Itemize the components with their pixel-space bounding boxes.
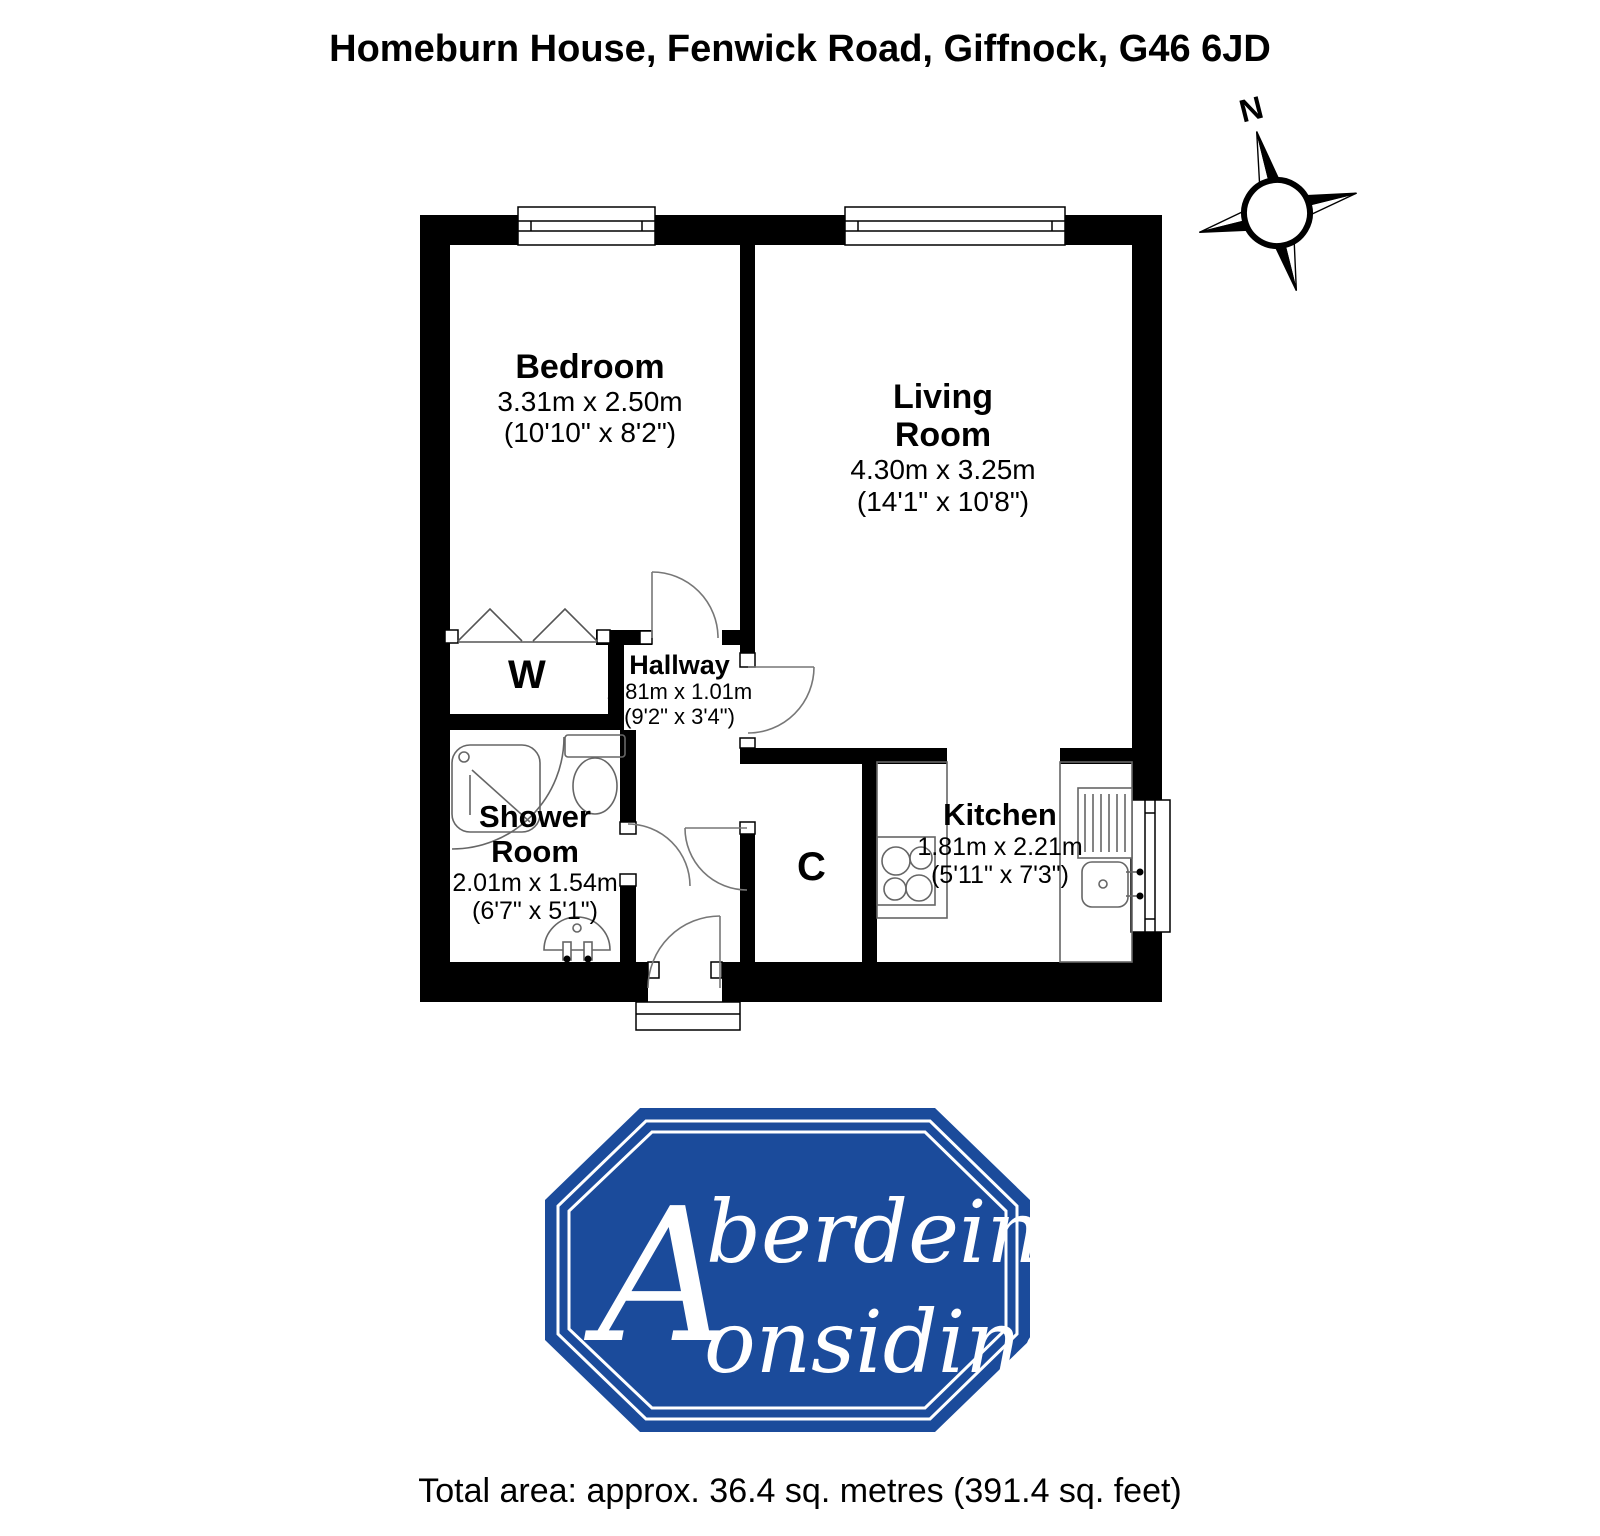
jamb [740,738,755,748]
shower-room-label: Shower Room 2.01m x 1.54m (6'7" x 5'1") [440,800,630,925]
living-room-window [845,207,1065,245]
room-dim-metric: 1.81m x 2.21m [900,833,1100,861]
logo-word-2: onsidine [704,1293,1072,1393]
shower-room-door [628,824,690,886]
cupboard-label: C [797,845,826,890]
room-dim-metric: 2.01m x 1.54m [440,869,630,897]
room-dim-imperial: (5'11" x 7'3") [900,861,1100,889]
floorplan-page: Homeburn House, Fenwick Road, Giffnock, … [0,0,1600,1536]
wardrobe-label: W [508,653,546,698]
room-dim-imperial: (9'2" x 3'4") [592,705,767,730]
bedroom-door [652,572,718,638]
room-name: Bedroom [460,348,720,386]
jamb [640,631,652,644]
hallway-label: Hallway 2.81m x 1.01m (9'2" x 3'4") [592,650,767,729]
room-name: Living Room [843,378,1043,454]
front-door-threshold [636,1002,740,1030]
room-dim-metric: 3.31m x 2.50m [460,386,720,417]
kitchen-window [1131,800,1170,932]
room-name: Shower Room [440,800,630,869]
wall-hall-cupboard [740,834,755,962]
jamb [597,630,610,643]
compass-circle [1237,173,1317,253]
wall-bedroom-living [740,245,755,653]
wardrobe-bifold-doors [458,609,597,642]
living-room-label: Living Room 4.30m x 3.25m (14'1" x 10'8"… [843,378,1043,517]
room-dim-imperial: (10'10" x 8'2") [460,417,720,448]
bedroom-window [518,207,655,245]
room-name: Kitchen [900,798,1100,833]
wall-bedroom-south-east [722,630,755,645]
floor-plan: N A berdein onsidine [0,0,1600,1536]
logo-word-1: berdein [706,1183,1042,1283]
kitchen-label: Kitchen 1.81m x 2.21m (5'11" x 7'3") [900,798,1100,889]
room-dim-imperial: (6'7" x 5'1") [440,897,630,925]
wall-cupboard-kitchen [862,762,877,962]
room-dim-metric: 4.30m x 3.25m [843,454,1043,485]
jamb [445,630,458,643]
bedroom-label: Bedroom 3.31m x 2.50m (10'10" x 8'2") [460,348,720,449]
compass-north-label: N [1236,89,1267,130]
room-dim-imperial: (14'1" x 10'8") [843,486,1043,517]
wall-bottom [420,962,1162,1002]
doors [628,572,814,988]
room-name: Hallway [592,650,767,680]
brand-logo: A berdein onsidine [545,1108,1072,1432]
total-area-text: Total area: approx. 36.4 sq. metres (391… [0,1472,1600,1511]
room-dim-metric: 2.81m x 1.01m [592,680,767,705]
cupboard-door [685,828,747,890]
compass-rose: N [1169,72,1376,310]
